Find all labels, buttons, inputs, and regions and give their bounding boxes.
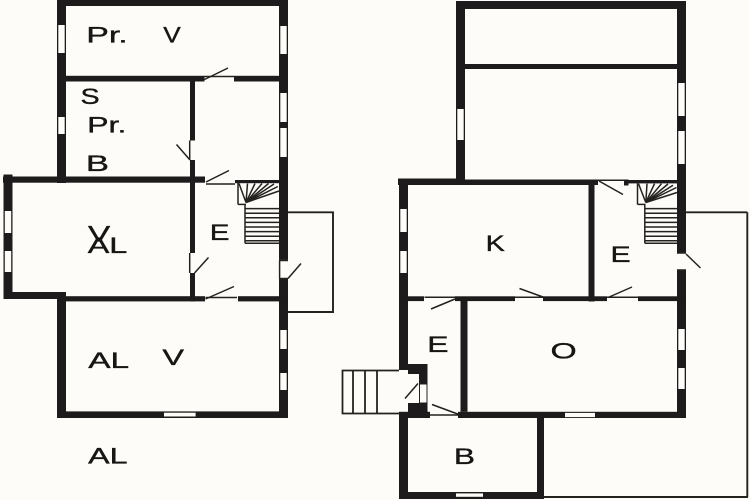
svg-text:Pr.: Pr. (86, 23, 128, 48)
svg-text:AL: AL (88, 233, 128, 258)
svg-text:B: B (86, 152, 109, 176)
svg-text:E: E (427, 332, 448, 357)
svg-text:V: V (162, 345, 184, 370)
svg-text:E: E (611, 242, 631, 267)
svg-text:B: B (454, 444, 475, 469)
svg-text:V: V (163, 23, 181, 48)
svg-text:E: E (210, 220, 230, 245)
svg-text:O: O (550, 339, 576, 364)
svg-text:S: S (81, 85, 100, 109)
svg-text:Pr.: Pr. (87, 112, 126, 137)
svg-text:AL: AL (88, 349, 129, 374)
svg-text:K: K (486, 232, 505, 256)
svg-text:AL: AL (88, 444, 127, 469)
